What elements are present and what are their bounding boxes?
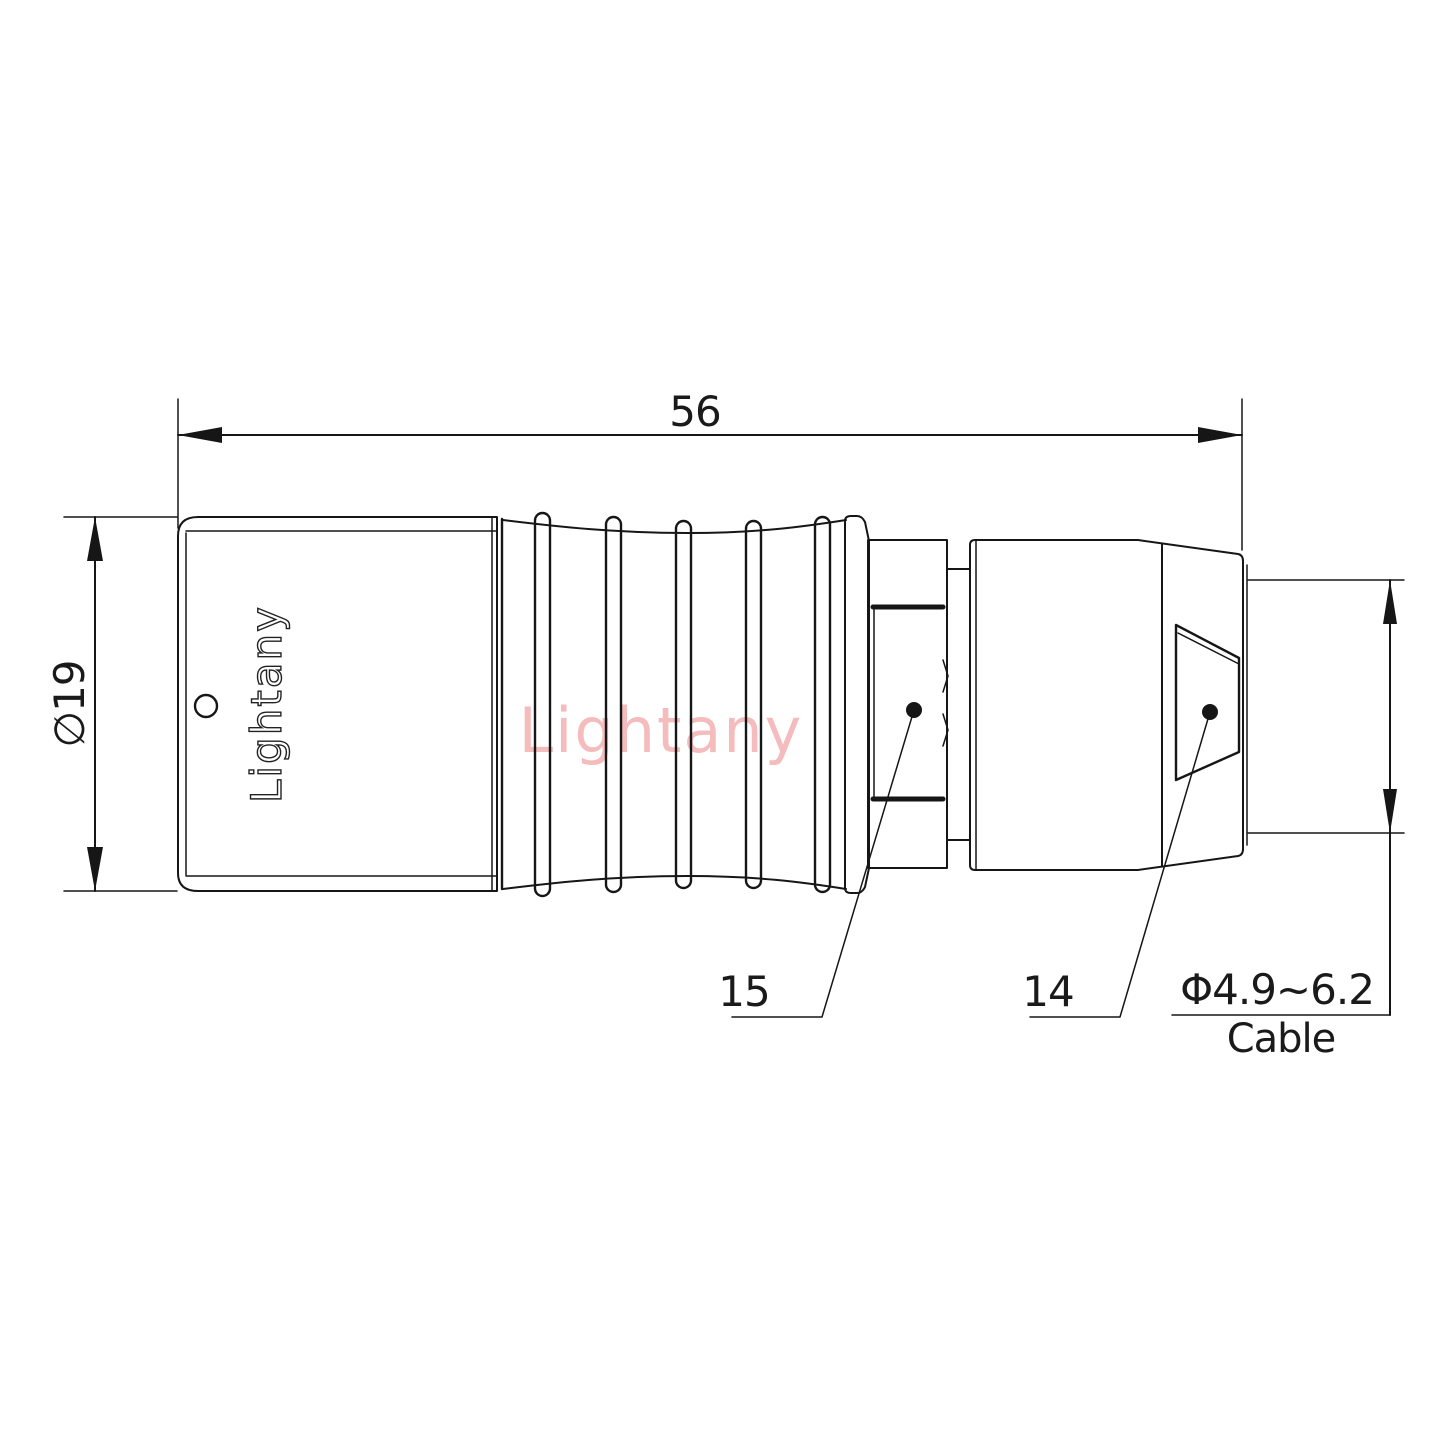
total-length-dimension-value: 56 (669, 387, 720, 436)
release-sleeve: Lightany (178, 517, 497, 891)
cable-diameter-range-value: Φ4.9~6.2 (1180, 965, 1374, 1014)
arrowhead-up (87, 517, 103, 561)
arrowhead-down (87, 847, 103, 891)
part-label-14: 14 (1022, 967, 1073, 1016)
rib-end-cap (845, 516, 869, 893)
connector-brand-label: Lightany (242, 605, 291, 803)
outer-diameter-dimension-value: ∅19 (45, 660, 94, 747)
cable-label: Cable (1227, 1016, 1336, 1062)
sleeve-hole (195, 695, 217, 717)
back-nut (970, 540, 1247, 870)
rib (815, 517, 830, 892)
part-label-15: 15 (718, 967, 769, 1016)
collar (868, 540, 948, 868)
arrowhead-left (178, 427, 222, 443)
arrowhead-down (1383, 789, 1397, 833)
arrowhead-up (1383, 580, 1397, 624)
drawing-canvas: Lightany Lightany (0, 0, 1440, 1440)
connector-drawing: Lightany Lightany (0, 0, 1440, 1440)
arrowhead-right (1198, 427, 1242, 443)
cable-dimension: Φ4.9~6.2 Cable (1172, 580, 1404, 1062)
neck (947, 569, 969, 840)
diameter-dimension: ∅19 (45, 517, 177, 891)
length-dimension: 56 (178, 387, 1242, 550)
